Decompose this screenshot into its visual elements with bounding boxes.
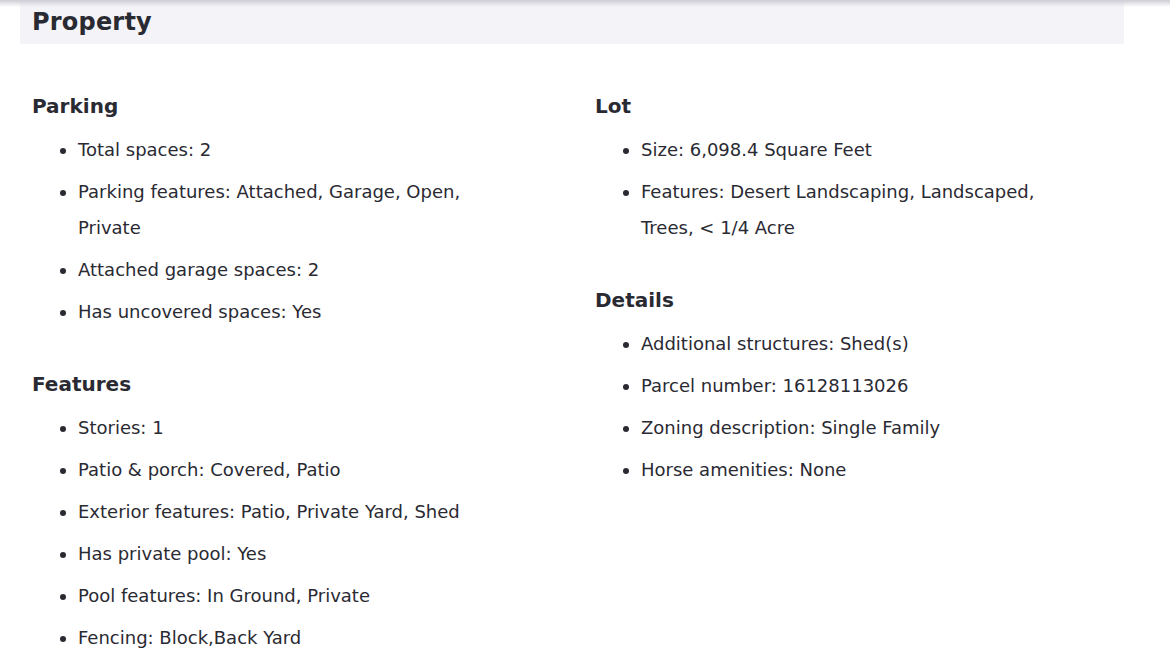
fact-item: Additional structures: Shed(s) [641,326,1061,362]
fact-item: Parcel number: 16128113026 [641,368,1061,404]
facts-group-details: Details Additional structures: Shed(s) P… [595,286,1112,488]
fact-item: Has private pool: Yes [78,536,498,572]
facts-group-heading: Parking [32,92,595,120]
facts-group-lot: Lot Size: 6,098.4 Square Feet Features: … [595,92,1112,246]
fact-item: Patio & porch: Covered, Patio [78,452,498,488]
fact-item: Stories: 1 [78,410,498,446]
page-title: Property [32,8,152,36]
facts-column-left: Parking Total spaces: 2 Parking features… [32,92,595,662]
fact-item: Fencing: Block,Back Yard [78,620,498,656]
facts-list: Size: 6,098.4 Square Feet Features: Dese… [595,132,1112,246]
facts-group-heading: Lot [595,92,1112,120]
facts-group-heading: Details [595,286,1112,314]
fact-item: Parking features: Attached, Garage, Open… [78,174,498,246]
facts-group-features: Features Stories: 1 Patio & porch: Cover… [32,370,595,656]
facts-list: Stories: 1 Patio & porch: Covered, Patio… [32,410,595,656]
fact-item: Exterior features: Patio, Private Yard, … [78,494,498,530]
property-section-header: Property [20,0,1124,44]
fact-item: Horse amenities: None [641,452,1061,488]
facts-grid: Parking Total spaces: 2 Parking features… [20,92,1124,662]
facts-group-parking: Parking Total spaces: 2 Parking features… [32,92,595,330]
facts-column-right: Lot Size: 6,098.4 Square Feet Features: … [595,92,1112,662]
fact-item: Attached garage spaces: 2 [78,252,498,288]
facts-list: Additional structures: Shed(s) Parcel nu… [595,326,1112,488]
facts-group-heading: Features [32,370,595,398]
fact-item: Zoning description: Single Family [641,410,1061,446]
facts-list: Total spaces: 2 Parking features: Attach… [32,132,595,330]
fact-item: Features: Desert Landscaping, Landscaped… [641,174,1061,246]
fact-item: Total spaces: 2 [78,132,498,168]
fact-item: Pool features: In Ground, Private [78,578,498,614]
fact-item: Size: 6,098.4 Square Feet [641,132,1061,168]
fact-item: Has uncovered spaces: Yes [78,294,498,330]
property-panel: Property Parking Total spaces: 2 Parking… [20,0,1124,662]
